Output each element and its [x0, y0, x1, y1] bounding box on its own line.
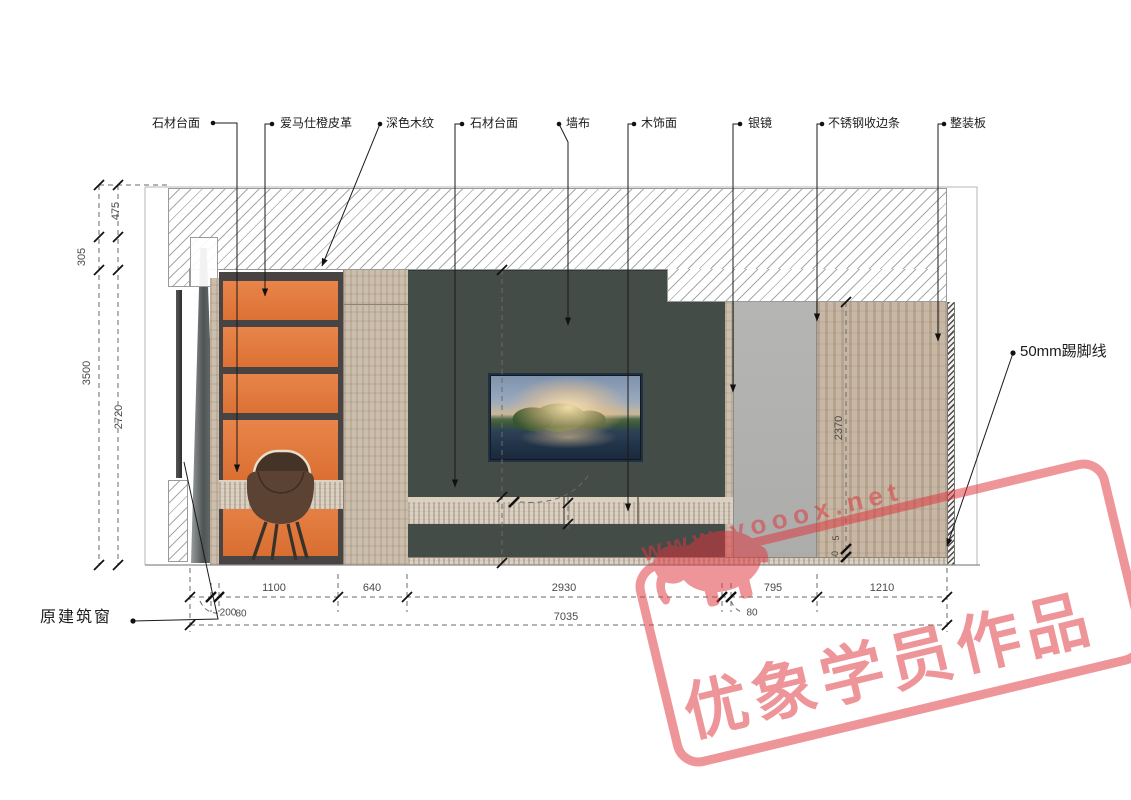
- dim-475: 475: [110, 202, 122, 220]
- callout-skirting: 50mm踢脚线: [1020, 345, 1107, 359]
- cabinet-left-wood-strip: [210, 278, 219, 565]
- cabinet-shelf-bay: [223, 420, 338, 480]
- dim-2370: 2370: [833, 416, 845, 440]
- console-seam: [637, 497, 639, 524]
- cabinet-desk-countertop: [219, 480, 343, 509]
- cabinet-shelf-bay: [223, 281, 338, 320]
- ceiling-hatch-right-step: [667, 269, 947, 302]
- dim-1100: 1100: [262, 582, 286, 594]
- callout-hermes-leather: 爱马仕橙皮革: [280, 116, 352, 130]
- dim-80-left: 80: [235, 609, 246, 620]
- cabinet-lower-bay: [223, 509, 338, 556]
- window-frame-bar: [176, 290, 182, 478]
- callout-prefab-panel: 整装板: [950, 116, 986, 130]
- tv-screen-image: [491, 376, 640, 459]
- console-seam: [563, 497, 565, 524]
- wood-pillar-left: [343, 270, 408, 565]
- dim-55: 55: [585, 461, 597, 473]
- dim-7035: 7035: [554, 611, 578, 623]
- callout-wood-veneer: 木饰面: [641, 116, 677, 130]
- dim-2930: 2930: [552, 582, 576, 594]
- callout-stone-top-1: 石材台面: [152, 116, 200, 130]
- callout-stone-top-2: 石材台面: [470, 116, 518, 130]
- dim-305: 305: [76, 248, 88, 266]
- window-sill-hatch: [168, 480, 188, 562]
- callout-silver-mirror: 银镜: [748, 116, 772, 130]
- cabinet-shelf-bay: [223, 374, 338, 413]
- wood-pillar-seam: [343, 304, 408, 305]
- dim-195: 195: [552, 523, 564, 541]
- callout-wall-fabric: 墙布: [566, 116, 590, 130]
- callout-stainless-trim: 不锈钢收边条: [828, 116, 900, 130]
- dim-200: 200: [220, 608, 237, 619]
- dim-640: 640: [363, 582, 381, 594]
- callout-original-window: 原建筑窗: [40, 611, 112, 625]
- cabinet-shelf-bay: [223, 327, 338, 367]
- dim-2720: 2720: [113, 405, 125, 429]
- ceiling-hatch-main: [168, 188, 947, 270]
- tv: [488, 373, 643, 462]
- ceiling-hatch-left-tail: [168, 268, 190, 287]
- callout-dark-wood-grain: 深色木纹: [386, 116, 434, 130]
- dim-3500: 3500: [81, 361, 93, 385]
- elevation-drawing: 石材台面 爱马仕橙皮革 深色木纹 石材台面 墙布 木饰面 银镜 不锈钢收边条 整…: [0, 0, 1131, 800]
